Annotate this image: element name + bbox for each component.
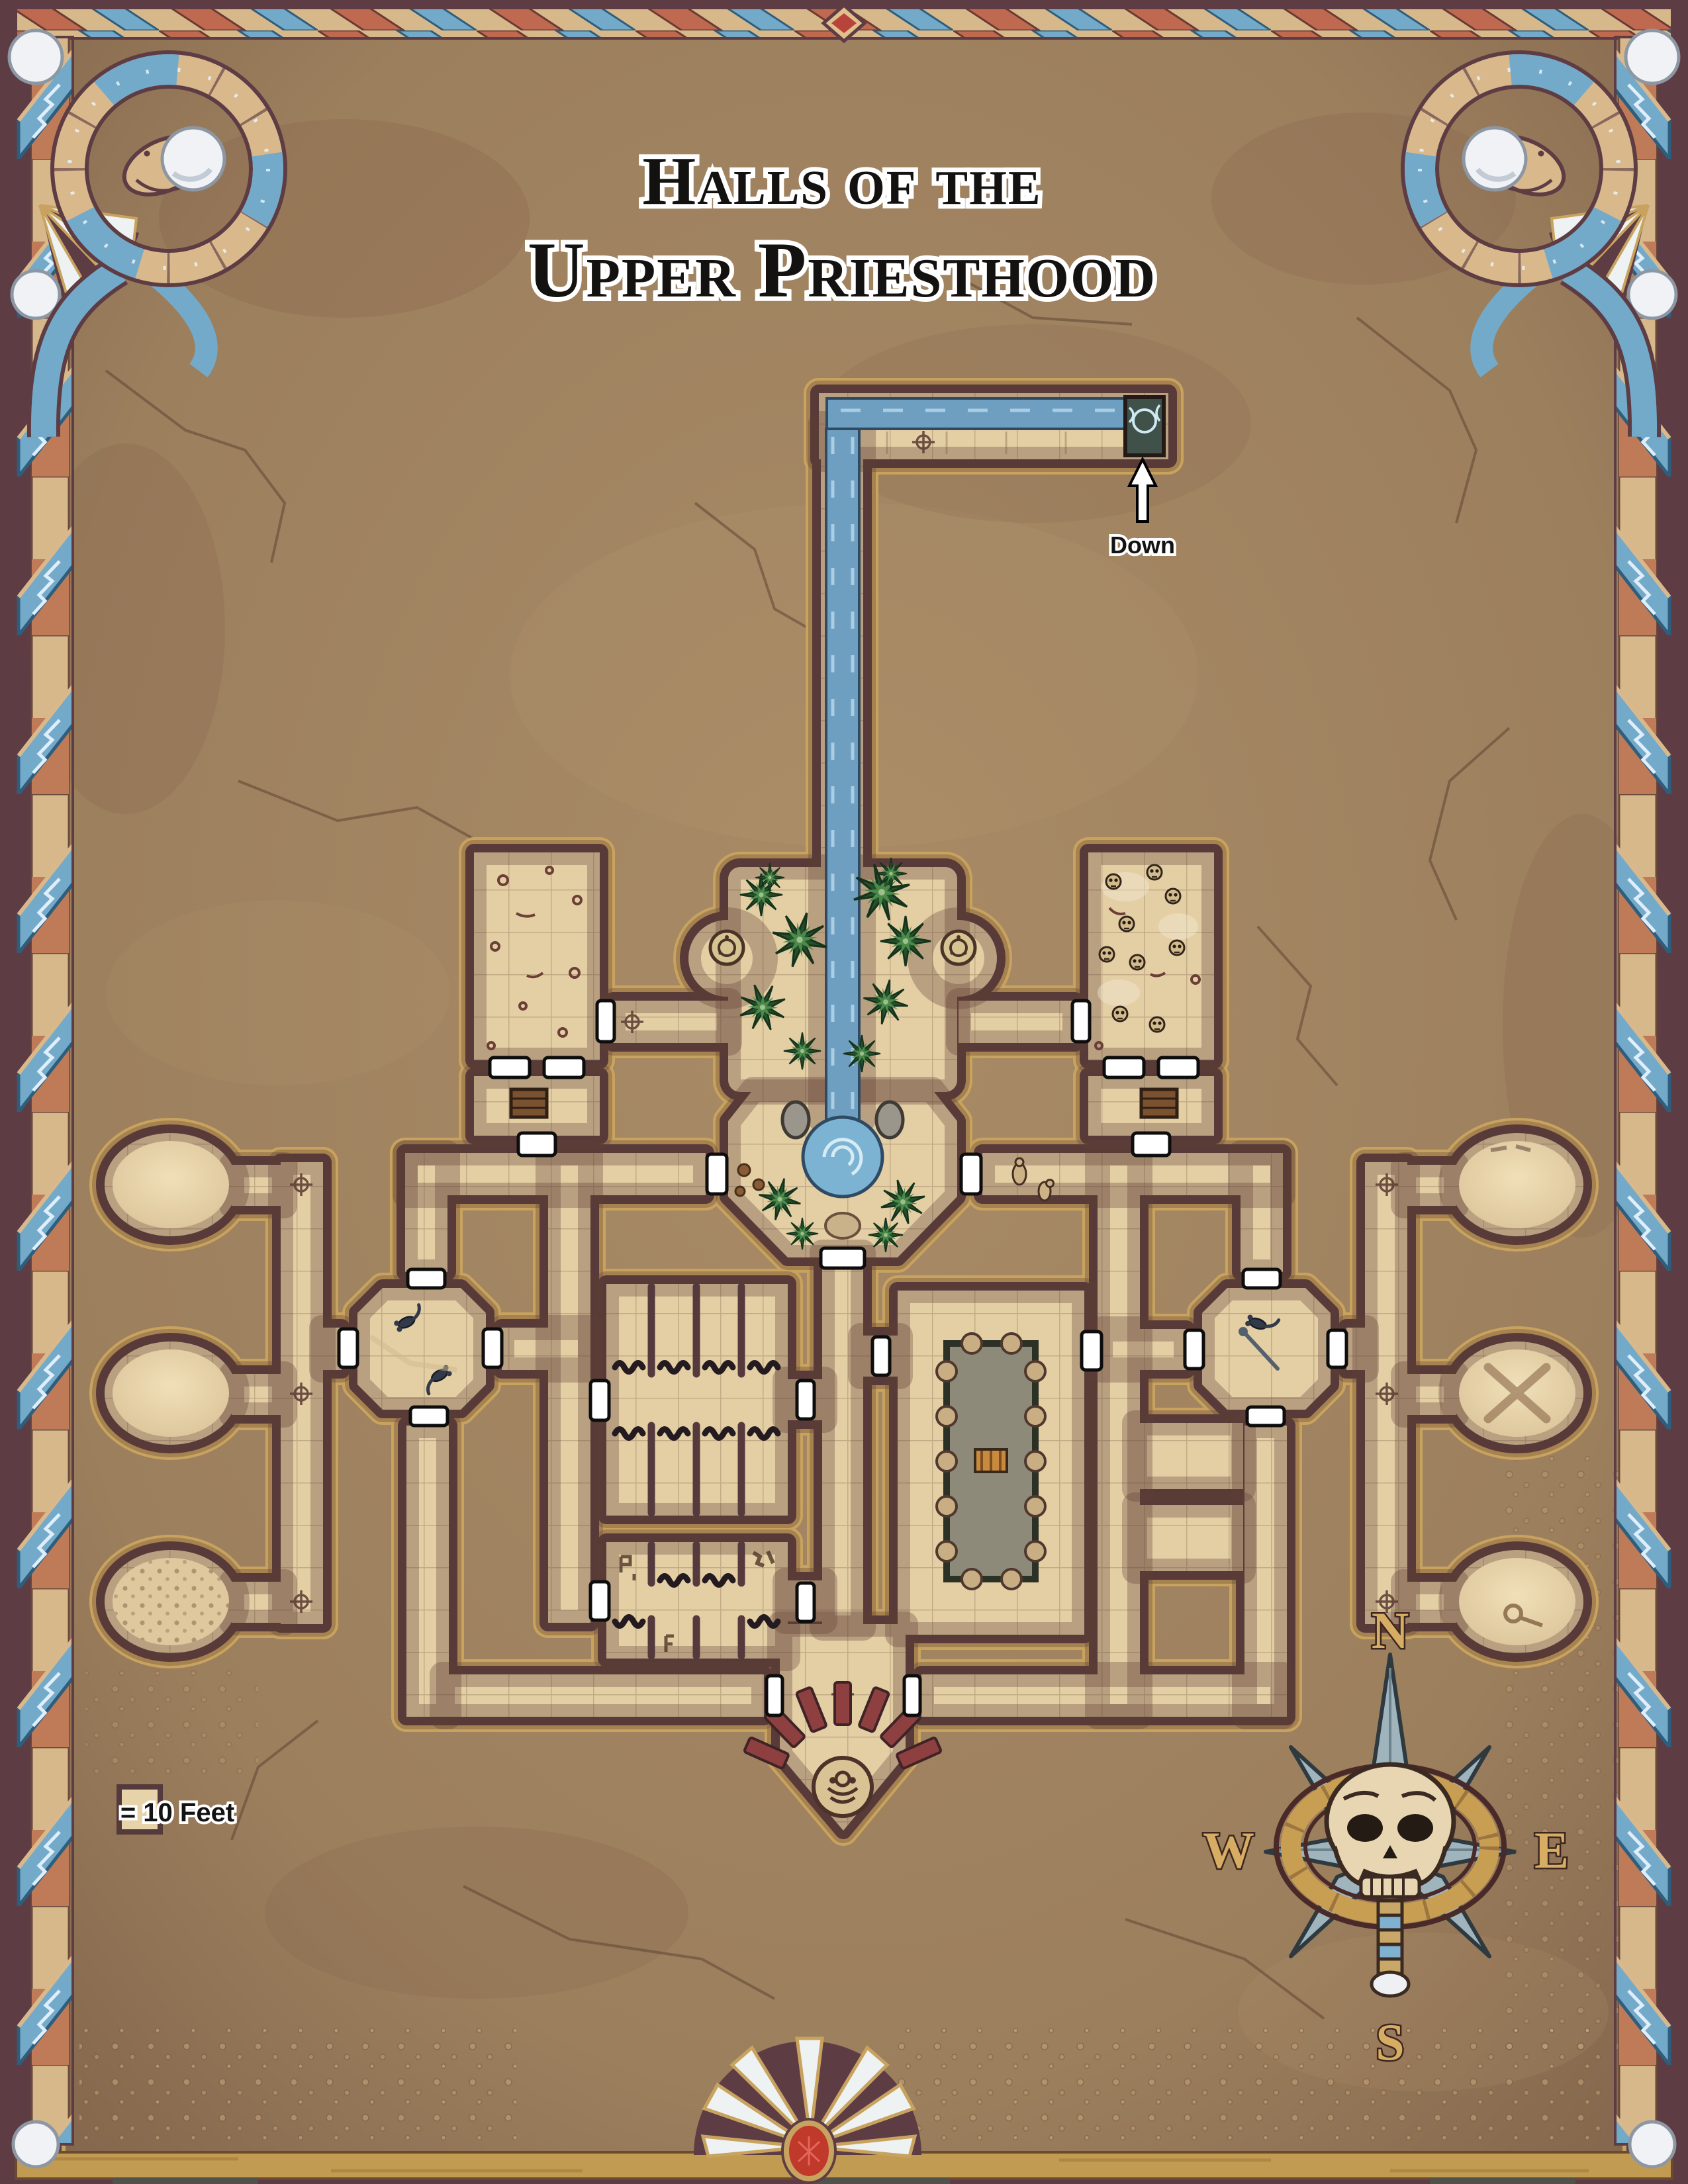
ritual-pool-hall <box>937 1334 1045 1589</box>
door <box>1072 1001 1090 1042</box>
door <box>1185 1330 1203 1369</box>
door <box>544 1058 584 1077</box>
west-rotunda-top <box>113 1141 229 1228</box>
door <box>339 1329 357 1367</box>
shrine-stone-east <box>876 1102 903 1138</box>
orb <box>13 2122 58 2167</box>
door <box>707 1154 727 1194</box>
waterfall-drain <box>1125 397 1164 455</box>
door <box>904 1676 920 1715</box>
door <box>1328 1330 1346 1367</box>
garden-whirlpool <box>803 1117 882 1197</box>
door <box>597 1001 614 1042</box>
door <box>797 1583 814 1621</box>
skull-teeth <box>1361 1877 1419 1897</box>
door <box>872 1337 890 1375</box>
wall-fountain-east <box>942 931 975 964</box>
door <box>821 1248 865 1268</box>
map-canvas: Down = 10 Feet <box>0 0 1688 2184</box>
door <box>1133 1133 1170 1156</box>
compass-east-label: E <box>1534 1821 1569 1879</box>
door <box>1247 1407 1284 1426</box>
door <box>767 1676 782 1715</box>
door <box>408 1269 445 1288</box>
bottom-gold-bar <box>16 2152 1672 2179</box>
east-rotunda-top <box>1459 1141 1575 1228</box>
west-rotunda-middle <box>113 1349 229 1437</box>
title-line-1: Halls of the <box>642 143 1041 219</box>
east-rotunda-bottom <box>1459 1558 1575 1645</box>
door <box>518 1133 555 1156</box>
door <box>1158 1058 1198 1077</box>
door <box>1243 1269 1280 1288</box>
door <box>490 1058 530 1077</box>
door <box>590 1582 609 1620</box>
door <box>1082 1332 1102 1370</box>
door <box>1104 1058 1144 1077</box>
shrine-stone-west <box>782 1102 809 1138</box>
door <box>590 1381 609 1420</box>
compass-west-label: W <box>1203 1821 1254 1879</box>
chest-nw <box>511 1089 547 1117</box>
door <box>797 1381 814 1419</box>
compass-south-label: S <box>1376 2013 1404 2071</box>
dungeon-map-page: Down = 10 Feet <box>0 0 1688 2184</box>
wall-fountain-west <box>710 931 743 964</box>
west-rotunda-speckled <box>113 1558 229 1645</box>
down-label: Down <box>1110 531 1175 559</box>
door <box>410 1407 447 1426</box>
door <box>483 1329 502 1367</box>
title-line-2: Upper Priesthood <box>528 226 1156 314</box>
legend-label: = 10 Feet <box>120 1798 234 1827</box>
compass-north-label: N <box>1372 1602 1409 1659</box>
chest-ne <box>1141 1089 1177 1117</box>
boulder <box>825 1213 860 1238</box>
orb <box>9 30 62 83</box>
door <box>961 1154 981 1194</box>
compass-handle <box>1372 1901 1409 1996</box>
